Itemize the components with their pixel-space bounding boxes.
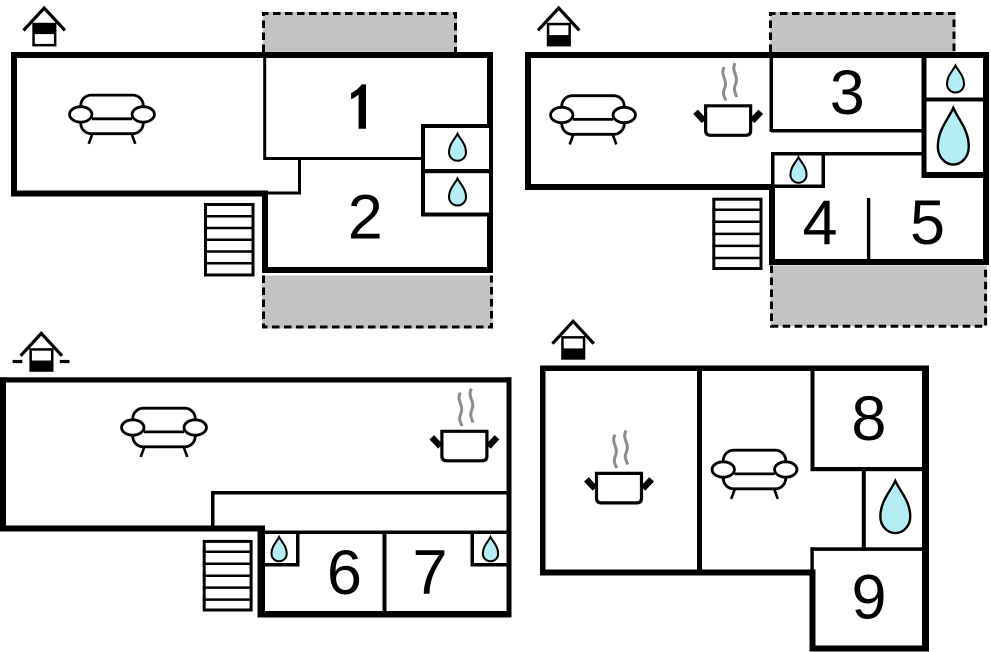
svg-text:2: 2 xyxy=(348,183,383,253)
svg-text:7: 7 xyxy=(412,538,447,608)
svg-text:3: 3 xyxy=(830,58,865,128)
svg-text:4: 4 xyxy=(802,188,837,258)
svg-text:6: 6 xyxy=(327,538,362,608)
svg-text:8: 8 xyxy=(851,384,886,454)
svg-text:9: 9 xyxy=(851,562,886,632)
svg-text:5: 5 xyxy=(910,188,945,258)
